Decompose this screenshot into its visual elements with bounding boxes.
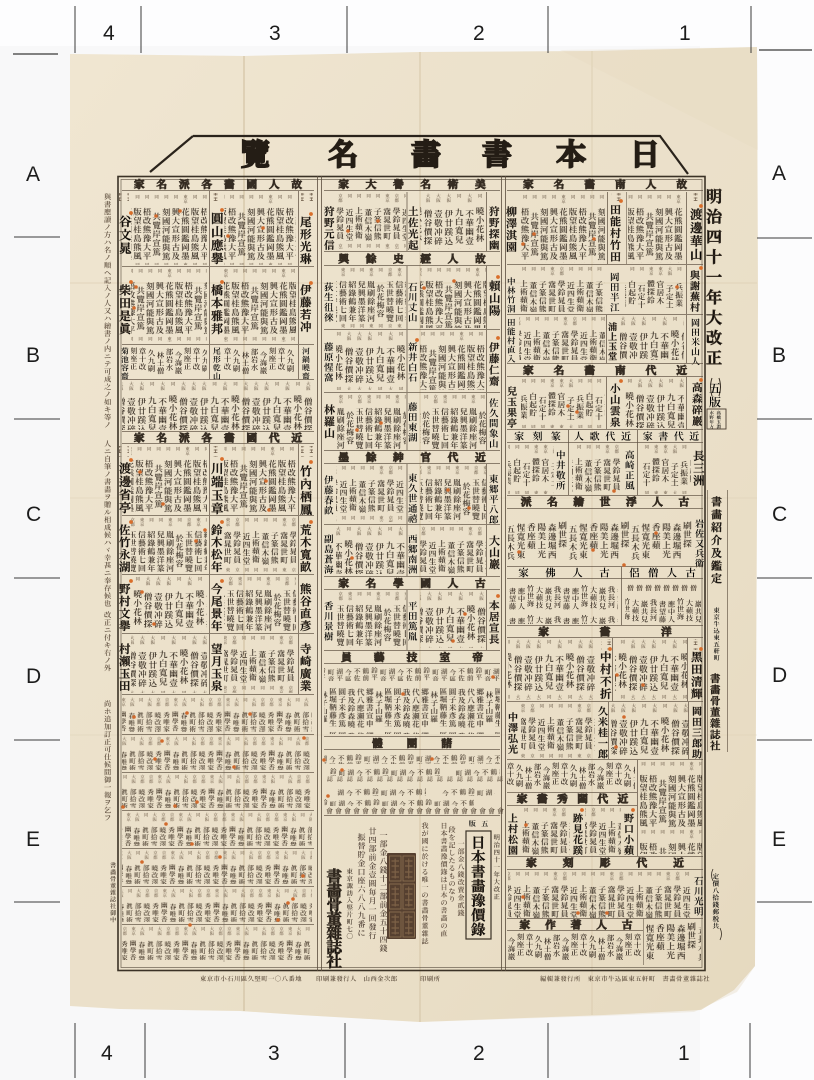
svg-text:B: B [772,344,786,367]
svg-text:1: 1 [678,1042,690,1065]
svg-text:E: E [26,828,40,851]
svg-text:A: A [26,163,40,186]
svg-text:D: D [26,665,41,688]
svg-text:2: 2 [473,1042,485,1065]
svg-text:3: 3 [269,22,281,45]
svg-text:C: C [26,503,41,526]
svg-text:4: 4 [101,1042,113,1065]
svg-text:C: C [772,503,787,526]
svg-text:2: 2 [473,22,485,45]
svg-text:1: 1 [679,22,691,45]
svg-text:E: E [772,828,786,851]
svg-text:D: D [772,664,787,687]
svg-text:A: A [772,162,786,185]
svg-text:4: 4 [103,22,115,45]
svg-text:B: B [26,344,40,367]
svg-text:3: 3 [268,1042,280,1065]
